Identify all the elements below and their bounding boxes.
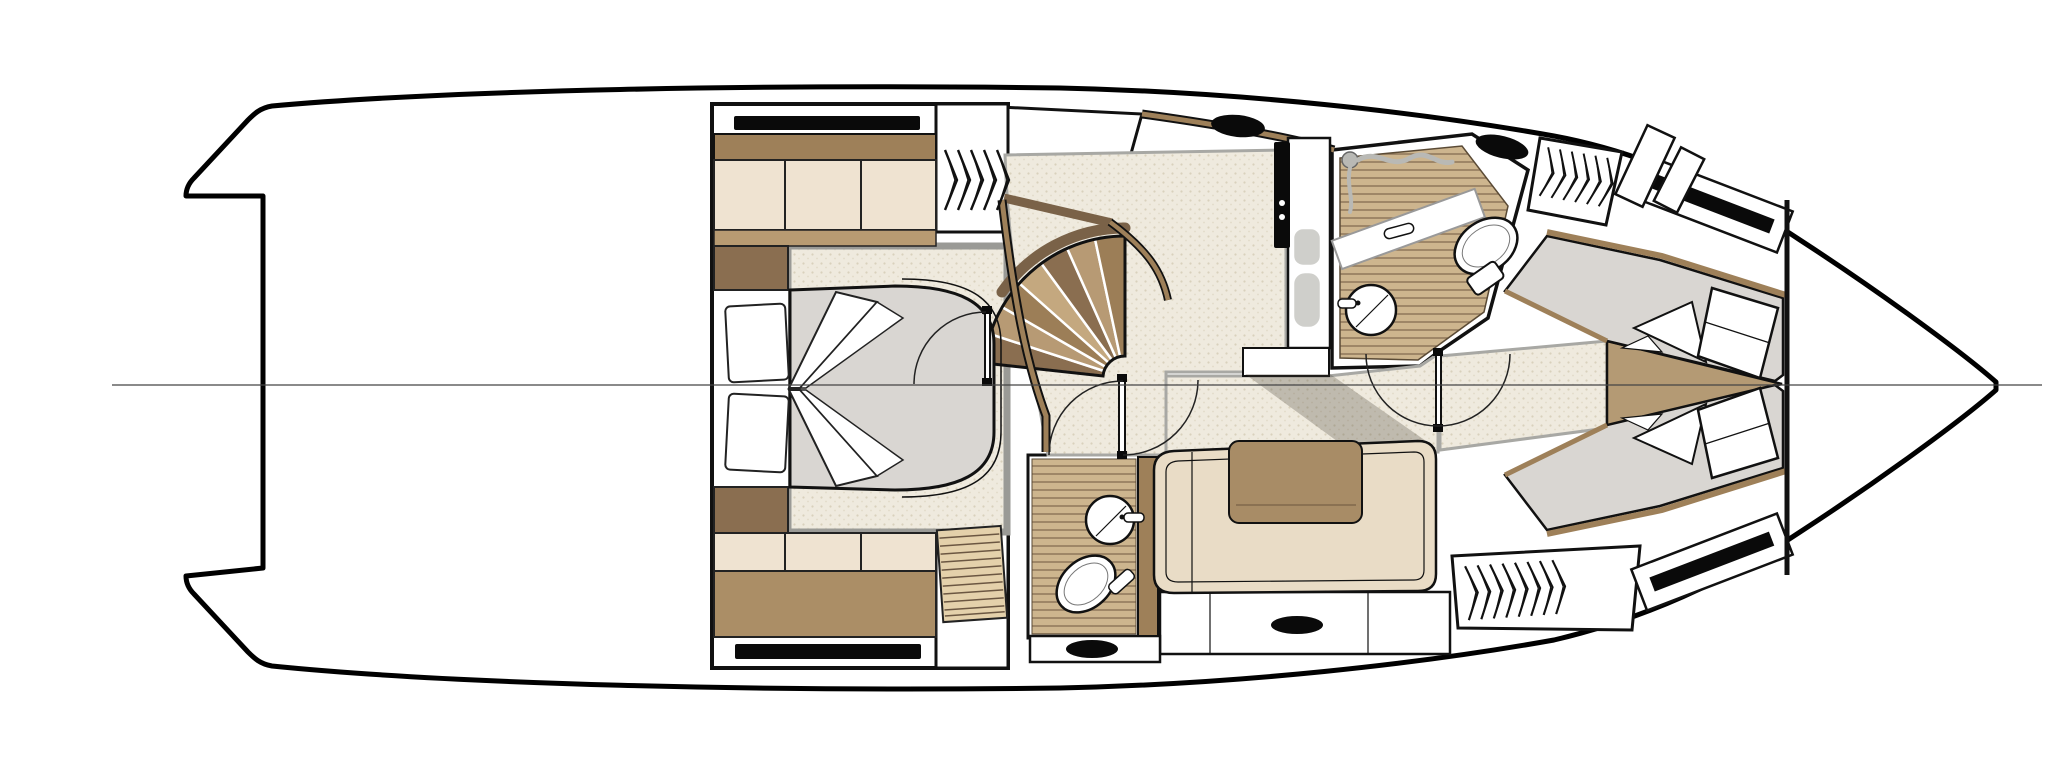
forward-cabin-wardrobe	[1452, 546, 1640, 630]
door-hinge	[982, 306, 992, 314]
dresser-bottom	[714, 571, 936, 637]
cabinet-section	[714, 533, 785, 571]
cooktop-panel	[1274, 142, 1290, 248]
burner-knob	[1279, 200, 1285, 206]
settee-back-cushion	[1229, 441, 1362, 523]
sink-faucet	[1338, 299, 1356, 308]
door-leaf	[1119, 380, 1125, 454]
cabinet-section	[861, 533, 936, 571]
galley-sink	[1293, 272, 1321, 328]
tv-strip-top	[734, 116, 920, 130]
shower-grate-slats	[937, 526, 1007, 622]
counter-strip	[714, 230, 936, 246]
galley-counter-footer	[1243, 348, 1329, 376]
master-wardrobe	[936, 104, 1008, 232]
pillow	[725, 303, 789, 382]
cabinet-band-top	[714, 134, 936, 160]
storage-oval	[1271, 616, 1323, 634]
nightstand-bottom	[714, 487, 788, 533]
door-leaf	[1436, 354, 1441, 426]
cabinet-section	[861, 160, 936, 230]
cabinet-section	[785, 160, 861, 230]
cabinet-section	[785, 533, 861, 571]
burner-knob	[1279, 214, 1285, 220]
sink-faucet	[1124, 513, 1144, 522]
galley-sink	[1293, 228, 1321, 266]
door-leaf	[985, 312, 990, 382]
storage-oval	[1066, 640, 1118, 658]
sink-drain	[1356, 301, 1361, 306]
cabinet-section	[714, 160, 785, 230]
yacht-floorplan	[0, 0, 2048, 780]
sink-drain	[1120, 515, 1125, 520]
mid-head-fixtures	[1032, 457, 1158, 636]
door-hinge	[1433, 348, 1443, 356]
tv-strip-bottom	[735, 644, 921, 659]
pillow	[725, 393, 789, 472]
head-sink	[1346, 285, 1396, 335]
nightstand-top	[714, 246, 788, 290]
shower-hose-icon	[1349, 168, 1351, 212]
